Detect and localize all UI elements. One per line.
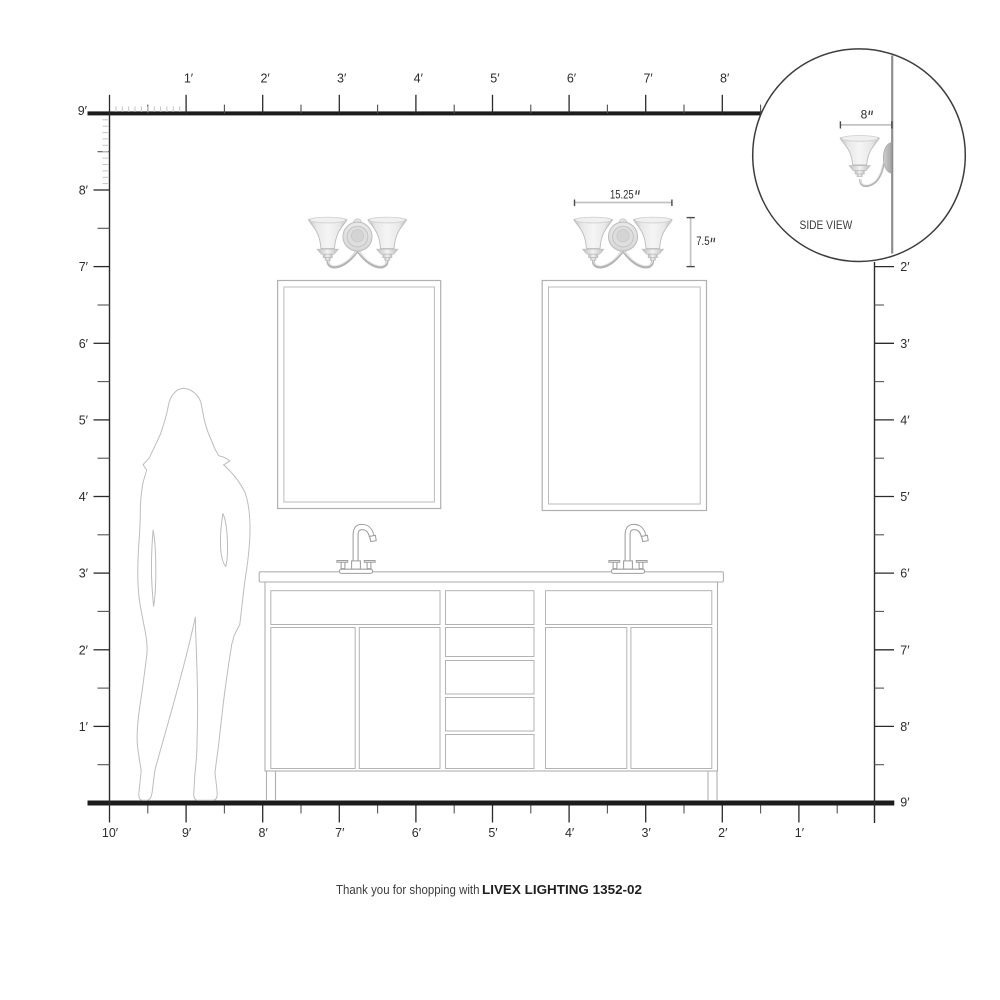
svg-text:5′: 5′ <box>900 490 910 504</box>
svg-text:7.5: 7.5 <box>696 234 710 248</box>
svg-text:5′: 5′ <box>488 826 498 840</box>
svg-text:1′: 1′ <box>79 720 89 734</box>
svg-text:4′: 4′ <box>79 490 89 504</box>
svg-text:2′: 2′ <box>718 826 728 840</box>
svg-text:1′: 1′ <box>184 72 194 86</box>
svg-text:3′: 3′ <box>337 72 347 86</box>
svg-text:7′: 7′ <box>900 643 910 657</box>
svg-text:6′: 6′ <box>79 337 89 351</box>
svg-text:2′: 2′ <box>79 643 89 657</box>
svg-text:4′: 4′ <box>900 414 910 428</box>
svg-text:7′: 7′ <box>335 826 345 840</box>
svg-text:5′: 5′ <box>79 414 89 428</box>
svg-text:15.25: 15.25 <box>610 187 634 201</box>
svg-text:7′: 7′ <box>79 260 89 274</box>
svg-text:LIVEX LIGHTING 1352-02: LIVEX LIGHTING 1352-02 <box>482 883 642 897</box>
svg-text:8′: 8′ <box>79 184 89 198</box>
svg-text:7′: 7′ <box>643 72 653 86</box>
svg-text:8′: 8′ <box>259 826 269 840</box>
svg-text:6′: 6′ <box>412 826 422 840</box>
svg-text:5′: 5′ <box>490 72 500 86</box>
svg-text:6′: 6′ <box>567 72 577 86</box>
svg-text:8′: 8′ <box>900 720 910 734</box>
svg-text:9′: 9′ <box>182 826 192 840</box>
svg-text:2′: 2′ <box>260 72 270 86</box>
svg-text:8′: 8′ <box>720 72 730 86</box>
svg-text:10′: 10′ <box>102 826 119 840</box>
svg-text:6′: 6′ <box>900 567 910 581</box>
svg-text:9′: 9′ <box>900 795 910 809</box>
svg-text:Thank you for shopping with: Thank you for shopping with <box>336 883 480 897</box>
svg-text:8: 8 <box>861 108 868 122</box>
svg-text:1′: 1′ <box>795 826 805 840</box>
svg-text:3′: 3′ <box>79 567 89 581</box>
svg-text:SIDE VIEW: SIDE VIEW <box>800 218 853 232</box>
svg-text:3′: 3′ <box>900 337 910 351</box>
svg-text:9′: 9′ <box>78 104 88 118</box>
svg-text:2′: 2′ <box>900 260 910 274</box>
svg-text:4′: 4′ <box>414 72 424 86</box>
svg-text:4′: 4′ <box>565 826 575 840</box>
svg-text:3′: 3′ <box>642 826 652 840</box>
